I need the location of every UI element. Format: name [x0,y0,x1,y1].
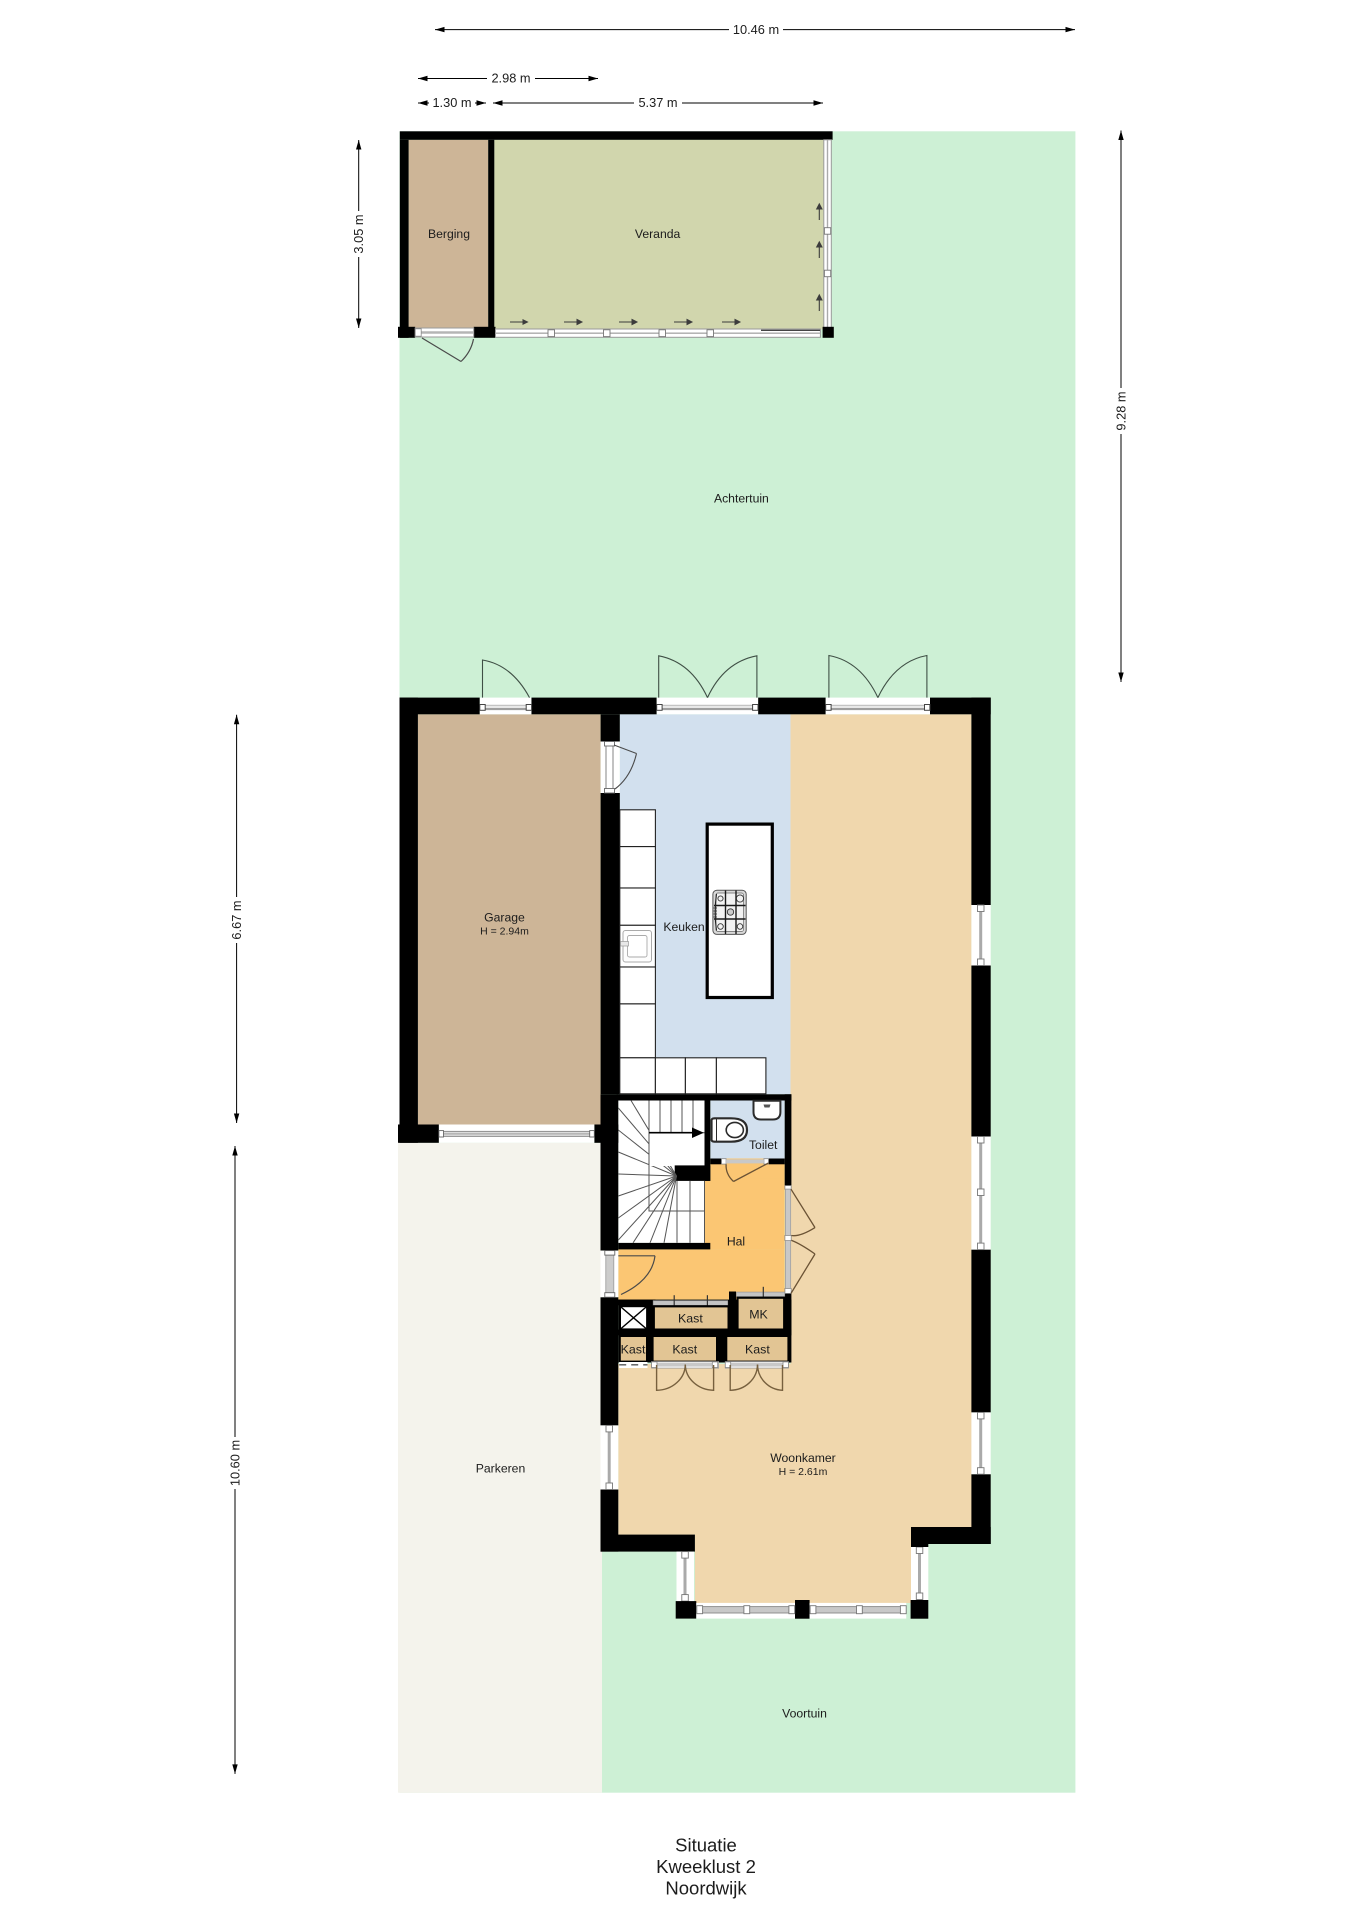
svg-text:H = 2.94m: H = 2.94m [480,926,529,938]
svg-text:10.60 m: 10.60 m [227,1440,242,1486]
svg-text:Toilet: Toilet [749,1138,778,1152]
svg-text:Hal: Hal [727,1235,745,1249]
svg-text:Kast: Kast [672,1342,697,1356]
svg-text:Berging: Berging [428,227,470,241]
svg-text:Keuken: Keuken [663,920,704,934]
svg-text:Parkeren: Parkeren [476,1462,525,1476]
svg-text:Garage: Garage [484,911,525,925]
svg-text:H = 2.61m: H = 2.61m [779,1466,828,1478]
svg-text:5.37 m: 5.37 m [638,95,677,110]
svg-text:MK: MK [749,1307,768,1321]
svg-text:Kast: Kast [745,1342,770,1356]
svg-text:6.67 m: 6.67 m [229,900,244,939]
svg-text:3.05 m: 3.05 m [351,214,366,253]
svg-text:10.46 m: 10.46 m [733,22,779,37]
svg-text:9.28 m: 9.28 m [1113,391,1128,430]
svg-text:1.30 m: 1.30 m [432,95,471,110]
svg-text:Kweeklust 2: Kweeklust 2 [656,1856,756,1877]
svg-text:Voortuin: Voortuin [782,1707,827,1721]
svg-text:Veranda: Veranda [635,227,681,241]
svg-text:Woonkamer: Woonkamer [770,1451,835,1465]
svg-text:2.98 m: 2.98 m [491,71,530,86]
svg-text:Kast: Kast [621,1342,646,1356]
svg-text:Achtertuin: Achtertuin [714,492,769,506]
svg-text:Situatie: Situatie [675,1835,737,1856]
svg-text:Kast: Kast [678,1311,703,1325]
svg-text:Noordwijk: Noordwijk [665,1878,747,1899]
